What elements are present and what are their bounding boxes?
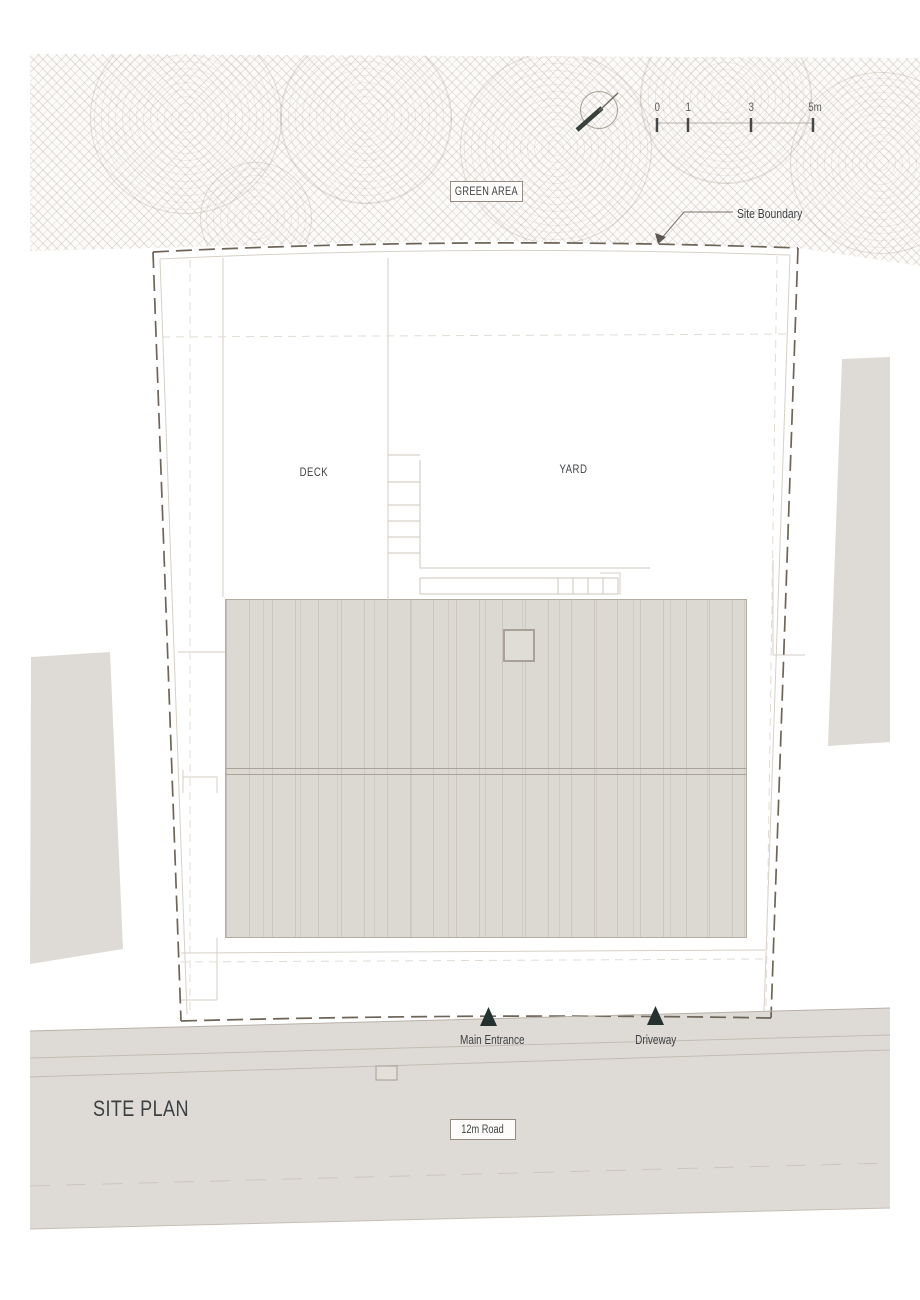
sheet-title: SITE PLAN xyxy=(93,1096,210,1122)
driveway-label: Driveway xyxy=(576,1031,736,1048)
driveway-marker-icon xyxy=(647,1006,664,1025)
site-internal-lines xyxy=(178,258,805,1000)
site-inner-edge xyxy=(160,250,790,1014)
scale-tick-1: 1 xyxy=(668,102,708,114)
scale-tick-3: 3 xyxy=(731,102,771,114)
boundary-leader-line xyxy=(655,212,733,244)
site-boundary-line xyxy=(153,243,798,1021)
scale-tick-5m: 5m xyxy=(795,102,835,114)
deck-label: DECK xyxy=(274,464,354,480)
yard-label: YARD xyxy=(533,461,613,477)
site-plan-sheet: GREEN AREA Site Boundary DECK YARD Main … xyxy=(0,0,920,1300)
scale-bar xyxy=(657,118,813,132)
main-entrance-label: Main Entrance xyxy=(412,1031,572,1048)
green-area-label: GREEN AREA xyxy=(450,181,523,202)
setback-dashed-lines xyxy=(162,256,788,1012)
site-boundary-label: Site Boundary xyxy=(737,204,819,222)
road-label: 12m Road xyxy=(450,1119,516,1140)
north-arrow-icon xyxy=(577,92,618,131)
